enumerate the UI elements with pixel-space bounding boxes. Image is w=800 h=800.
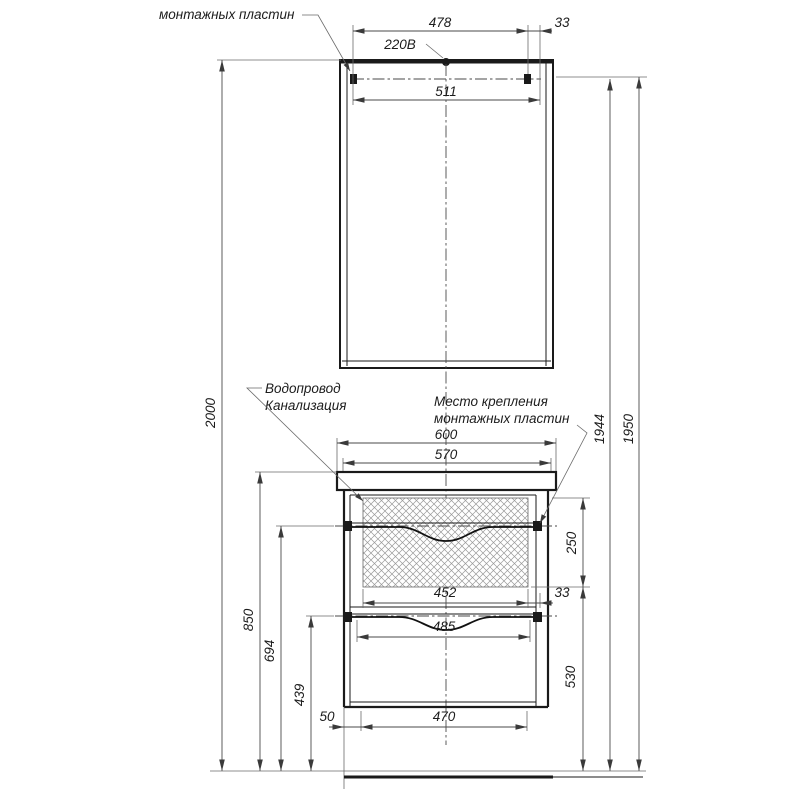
power-leader-line bbox=[426, 44, 443, 58]
cabinet-mounting-plate-upper-left bbox=[343, 521, 352, 531]
dim-1944-label: 1944 bbox=[592, 414, 607, 444]
dim-470-label: 470 bbox=[433, 709, 456, 724]
dim-50-label: 50 bbox=[319, 709, 335, 724]
power-label: 220В bbox=[383, 37, 416, 52]
dim-33-mid-label: 33 bbox=[554, 585, 570, 600]
mirror-mounting-plate-left bbox=[350, 74, 357, 84]
dim-250-label: 250 bbox=[564, 531, 579, 555]
dim-530-label: 530 bbox=[563, 665, 578, 688]
cabinet-mounting-plate-lower-right bbox=[533, 612, 542, 622]
water-supply-label: Водопровод bbox=[265, 381, 341, 396]
dim-850-label: 850 bbox=[241, 608, 256, 631]
cabinet-mounting-plate-lower-left bbox=[343, 612, 352, 622]
leader-annotations: монтажных пластин Водопровод Канализация… bbox=[159, 7, 587, 523]
dim-600-label: 600 bbox=[435, 427, 458, 442]
dim-570-label: 570 bbox=[435, 447, 458, 462]
mounting-plates-top-label: монтажных пластин bbox=[159, 7, 295, 22]
floor-line bbox=[210, 771, 646, 777]
dim-511-label: 511 bbox=[435, 84, 457, 99]
bathroom-furniture-installation-drawing: 478 33 511 220В 2000 850 694 439 250 530… bbox=[0, 0, 800, 800]
sewerage-label: Канализация bbox=[265, 398, 346, 413]
technical-drawing-page: 478 33 511 220В 2000 850 694 439 250 530… bbox=[0, 0, 800, 800]
sink-cutout-zone bbox=[363, 498, 528, 587]
countertop bbox=[337, 472, 556, 490]
left-vertical-dimensions: 2000 850 694 439 bbox=[203, 60, 341, 771]
dim-1950-label: 1950 bbox=[621, 413, 636, 444]
dim-694-label: 694 bbox=[262, 640, 277, 663]
dim-452-label: 452 bbox=[434, 585, 457, 600]
mirror-mounting-plate-right bbox=[524, 74, 531, 84]
dim-33-top-label: 33 bbox=[554, 15, 570, 30]
dim-2000-label: 2000 bbox=[203, 397, 218, 429]
mounting-location-label-line2: монтажных пластин bbox=[434, 411, 570, 426]
dim-478-label: 478 bbox=[429, 15, 452, 30]
mounting-location-label-line1: Место крепления bbox=[434, 394, 548, 409]
cabinet-dimensions: 600 570 452 33 485 50 470 bbox=[319, 427, 570, 789]
dim-439-label: 439 bbox=[292, 683, 307, 706]
dim-485-label: 485 bbox=[433, 619, 456, 634]
